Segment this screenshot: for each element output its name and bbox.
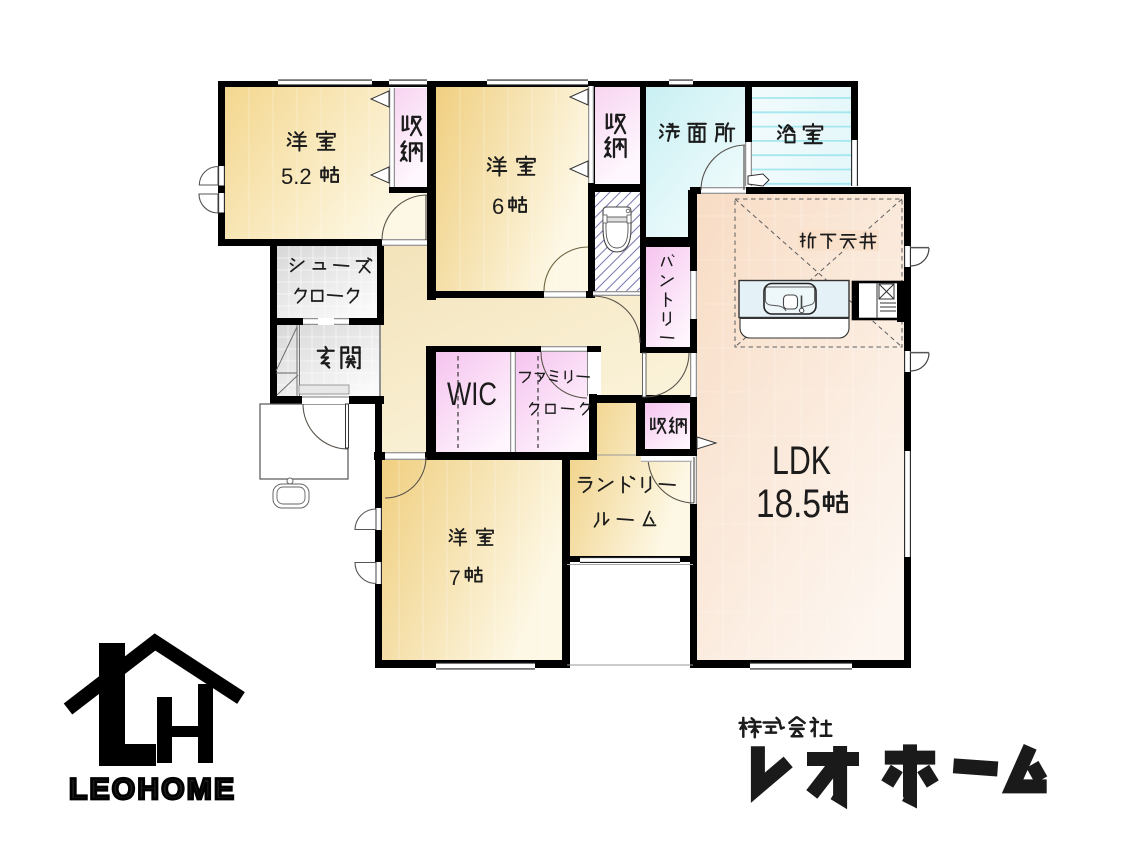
svg-text:18.5: 18.5 (756, 482, 821, 526)
svg-text:6: 6 (492, 194, 504, 219)
svg-text:LDK: LDK (772, 439, 831, 483)
svg-text:WIC: WIC (447, 376, 497, 412)
svg-text:5.2: 5.2 (281, 164, 312, 189)
svg-text:LEOHOME: LEOHOME (69, 773, 235, 806)
svg-text:7: 7 (449, 567, 461, 590)
